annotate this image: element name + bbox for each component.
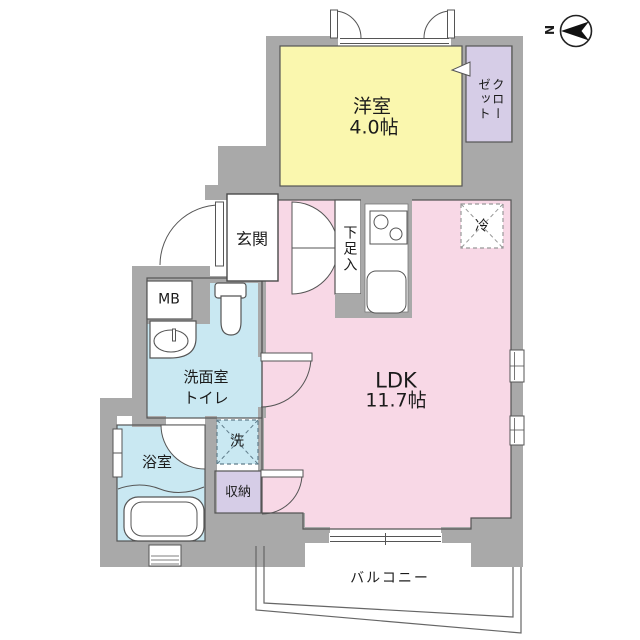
wall-below-shoe-cabinet (335, 294, 363, 318)
entrance-door (160, 202, 224, 266)
western-room-double-door (331, 10, 455, 44)
door-leaf (331, 10, 338, 38)
label-compass-north: N (543, 25, 557, 35)
label-closet: クローゼット (476, 76, 504, 124)
floor-plan: 洋室 4.0帖 LDK 11.7帖 玄関 下足入 クローゼット MB 冷 洗 収… (0, 0, 640, 640)
toilet-bowl (221, 296, 241, 335)
balcony-sliding-window (329, 533, 442, 545)
label-meter-box: MB (158, 292, 180, 309)
door-arc (334, 11, 361, 38)
entrance-door-arc (160, 205, 220, 265)
label-entrance: 玄関 (236, 229, 268, 248)
washbasin-bowl (154, 330, 188, 352)
label-refrigerator: 冷 (475, 219, 489, 236)
label-washroom: 洗面室 トイレ (183, 367, 228, 409)
label-western-room-size: 4.0帖 (349, 117, 398, 140)
washroom-door-leaf (261, 353, 312, 361)
label-balcony: バルコニー (350, 571, 430, 588)
stove-icon (370, 211, 407, 244)
compass-icon (561, 16, 592, 47)
washbasin-tap (173, 329, 176, 341)
washbasin-icon (150, 321, 196, 358)
label-bathroom: 浴室 (142, 453, 172, 471)
label-washroom-line2: トイレ (183, 388, 228, 409)
label-washing-machine: 洗 (230, 434, 244, 451)
pipe-space-box (149, 545, 181, 566)
label-storage: 収納 (225, 485, 251, 501)
entrance-door-leaf (216, 202, 224, 266)
kitchen-sink-icon (367, 271, 406, 313)
bathtub-inner (131, 502, 197, 536)
label-ldk-size: 11.7帖 (365, 390, 426, 413)
door-arc (424, 11, 451, 38)
storage-door-leaf (261, 470, 303, 477)
kitchen-unit (361, 196, 412, 318)
window (510, 416, 524, 445)
floor-plan-drawing (0, 0, 640, 640)
label-shoe-cabinet: 下足入 (341, 217, 358, 281)
label-washroom-line1: 洗面室 (183, 367, 228, 388)
door-leaf (448, 10, 455, 38)
pipe-space (149, 545, 181, 566)
label-western-room: 洋室 (353, 96, 391, 119)
